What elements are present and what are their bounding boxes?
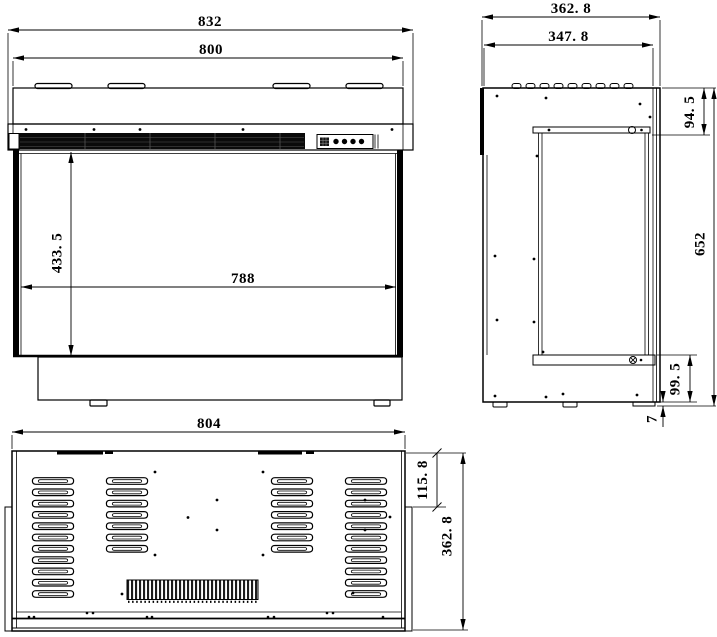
louver-slot xyxy=(345,500,386,507)
dim-label-804: 804 xyxy=(197,416,221,432)
louver-slot xyxy=(32,568,73,575)
left-side-step xyxy=(5,507,12,631)
side-screws xyxy=(494,95,652,399)
louver-slot xyxy=(271,478,312,485)
louver-slot xyxy=(345,591,386,598)
louver-slot xyxy=(32,557,73,564)
louver-slot xyxy=(345,512,386,519)
louver-slot xyxy=(271,512,312,519)
bottom-step-dimension: 115. 8 xyxy=(406,449,466,512)
control-display xyxy=(320,138,329,147)
front-body-width-dimension: 800 xyxy=(13,42,403,86)
right-side-step xyxy=(405,507,412,631)
louver-column-1 xyxy=(32,478,73,598)
panel-screw xyxy=(630,357,643,364)
front-louver-band xyxy=(8,124,413,150)
louver-slot xyxy=(271,523,312,530)
front-opening-height-dimension: 433. 5 xyxy=(50,152,72,356)
dim-label-115-8: 115. 8 xyxy=(415,460,431,500)
side-top-section-dimension: 94. 5 xyxy=(652,88,716,135)
dim-label-362-8-side: 362. 8 xyxy=(551,1,592,17)
louver-slot xyxy=(32,534,73,541)
front-base xyxy=(38,357,402,406)
louver-slot xyxy=(271,489,312,496)
band-screws xyxy=(25,128,394,131)
front-glass-panel xyxy=(13,150,403,356)
dim-label-347-8: 347. 8 xyxy=(548,29,589,45)
louver-slot xyxy=(345,489,386,496)
control-button xyxy=(350,139,355,144)
louver-slot xyxy=(106,534,147,541)
left-glass-trim xyxy=(13,150,19,356)
louver-slot xyxy=(106,546,147,553)
dim-label-800: 800 xyxy=(199,42,223,58)
side-overall-height-dimension: 652 xyxy=(657,88,716,406)
panel-hole xyxy=(629,127,636,134)
technical-drawing-page: 832 800 xyxy=(0,0,717,637)
louver-slot xyxy=(271,546,312,553)
side-service-panel xyxy=(533,127,655,366)
dim-label-433-5: 433. 5 xyxy=(50,233,66,274)
dim-label-94-5: 94. 5 xyxy=(682,96,698,129)
louver-slot xyxy=(32,579,73,586)
louver-slot xyxy=(106,489,147,496)
band-end-cap xyxy=(9,134,19,150)
control-button xyxy=(333,139,338,144)
dim-label-7: 7 xyxy=(645,415,661,423)
front-top-section xyxy=(13,88,403,124)
control-button xyxy=(359,139,364,144)
front-view: 832 800 xyxy=(8,14,413,406)
louver-slot xyxy=(345,523,386,530)
louver-slot xyxy=(106,478,147,485)
louver-column-4 xyxy=(345,478,386,598)
louver-slot xyxy=(32,523,73,530)
louver-slot xyxy=(345,546,386,553)
side-body-depth-dimension: 347. 8 xyxy=(484,29,653,86)
louver-column-2 xyxy=(106,478,147,552)
louver-slot xyxy=(106,512,147,519)
louver-slot xyxy=(32,489,73,496)
louver-slot xyxy=(106,523,147,530)
louver-slot xyxy=(345,579,386,586)
louver-slot xyxy=(271,500,312,507)
dim-label-362-8-bottom: 362. 8 xyxy=(440,516,456,557)
control-panel xyxy=(317,135,373,149)
louver-slot xyxy=(106,500,147,507)
louver-slot xyxy=(345,568,386,575)
dim-label-652: 652 xyxy=(693,232,709,256)
vent-grille xyxy=(127,580,258,602)
louver-column-3 xyxy=(271,478,312,552)
front-foot xyxy=(90,400,107,406)
dim-label-99-5: 99. 5 xyxy=(668,363,684,396)
front-foot xyxy=(374,400,390,406)
front-overall-width-dimension: 832 xyxy=(8,14,413,126)
louver-slot xyxy=(345,478,386,485)
right-glass-trim xyxy=(397,150,403,356)
side-view: 362. 8 347. 8 xyxy=(480,1,716,427)
dim-label-832: 832 xyxy=(198,14,222,30)
louver-slot xyxy=(32,546,73,553)
louver-slot xyxy=(32,512,73,519)
louver-slot xyxy=(271,534,312,541)
bottom-width-dimension: 804 xyxy=(12,416,405,449)
louver-slot xyxy=(32,478,73,485)
heater-vent-strip xyxy=(19,133,305,149)
louver-slot xyxy=(345,534,386,541)
louver-slot xyxy=(32,500,73,507)
louver-slot xyxy=(345,557,386,564)
fireplace-dimension-drawing: 832 800 xyxy=(0,0,717,637)
side-front-glass-edge xyxy=(480,88,484,155)
control-button xyxy=(342,139,347,144)
front-opening-width-dimension: 788 xyxy=(21,271,396,287)
louver-slot xyxy=(32,591,73,598)
dim-label-788: 788 xyxy=(231,271,255,287)
bottom-view: 804 xyxy=(5,416,468,631)
